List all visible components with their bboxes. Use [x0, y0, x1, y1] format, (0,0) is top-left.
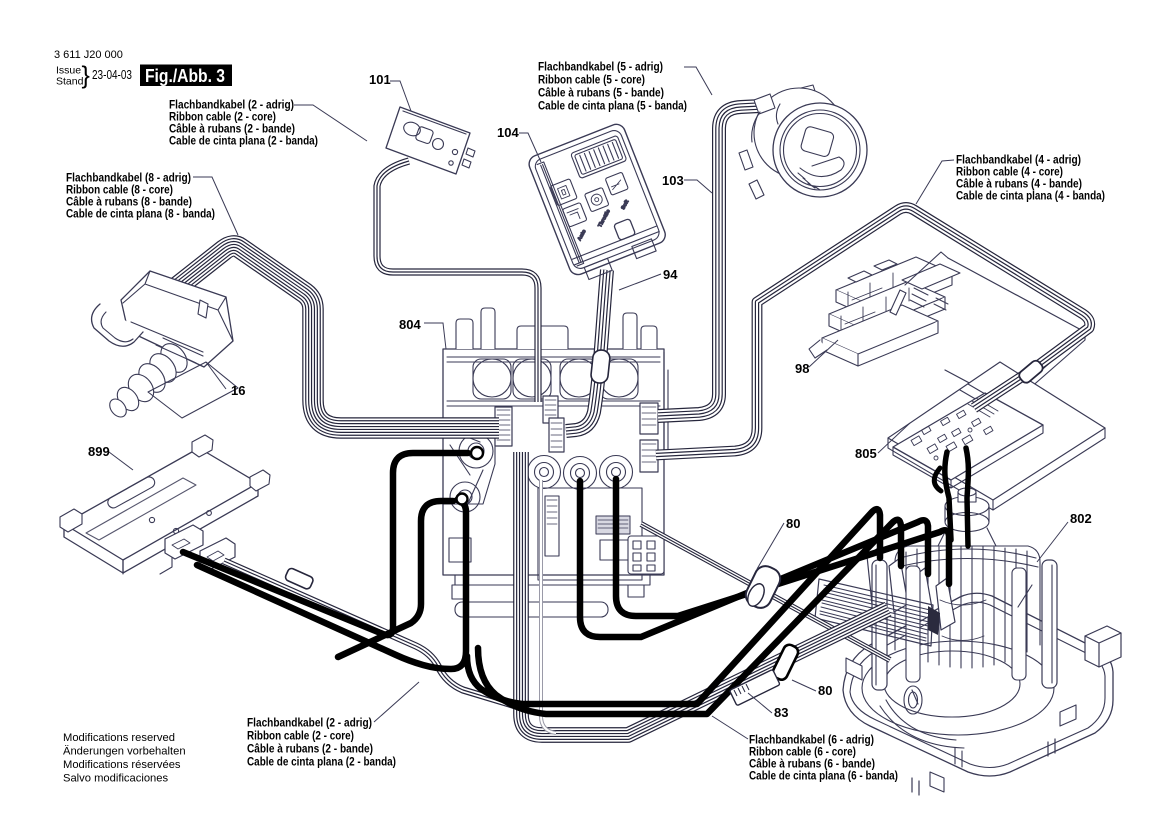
- svg-text:103: 103: [662, 173, 684, 188]
- svg-text:101: 101: [369, 72, 391, 87]
- svg-text:Salvo modificaciones: Salvo modificaciones: [63, 773, 168, 785]
- svg-text:Cable de cinta plana (5 - band: Cable de cinta plana (5 - banda): [538, 100, 687, 113]
- svg-text:98: 98: [795, 361, 809, 376]
- svg-text:804: 804: [399, 317, 421, 332]
- svg-text:Câble à rubans (2 - bande): Câble à rubans (2 - bande): [247, 743, 373, 756]
- svg-text:Änderungen vorbehalten: Änderungen vorbehalten: [63, 746, 186, 758]
- svg-text:805: 805: [855, 446, 877, 461]
- svg-text:Flachbandkabel (5 - adrig): Flachbandkabel (5 - adrig): [538, 61, 663, 74]
- svg-text:}: }: [82, 62, 90, 90]
- svg-text:Modifications réservées: Modifications réservées: [63, 759, 181, 771]
- svg-text:Cable de cinta plana (6 - band: Cable de cinta plana (6 - banda): [749, 770, 898, 783]
- svg-text:Cable de cinta plana (2 - band: Cable de cinta plana (2 - banda): [247, 756, 396, 769]
- svg-text:94: 94: [663, 267, 678, 282]
- svg-text:899: 899: [88, 444, 110, 459]
- svg-text:80: 80: [786, 516, 800, 531]
- svg-text:Cable de cinta plana (4 - band: Cable de cinta plana (4 - banda): [956, 190, 1105, 203]
- svg-text:16: 16: [231, 383, 245, 398]
- svg-text:Stand: Stand: [56, 76, 84, 88]
- svg-text:Cable de cinta plana (8 - band: Cable de cinta plana (8 - banda): [66, 208, 215, 221]
- svg-text:3 611 J20 000: 3 611 J20 000: [54, 49, 123, 61]
- svg-text:104: 104: [497, 125, 519, 140]
- svg-text:Fig./Abb. 3: Fig./Abb. 3: [145, 66, 225, 86]
- svg-text:80: 80: [818, 683, 832, 698]
- svg-text:Câble à rubans (5 - bande): Câble à rubans (5 - bande): [538, 87, 664, 100]
- svg-text:23-04-03: 23-04-03: [92, 68, 132, 82]
- svg-text:83: 83: [774, 705, 788, 720]
- svg-text:802: 802: [1070, 511, 1092, 526]
- svg-text:Modifications reserved: Modifications reserved: [63, 732, 175, 744]
- svg-text:Ribbon cable (2 - core): Ribbon cable (2 - core): [247, 730, 354, 743]
- svg-text:Ribbon cable (5 - core): Ribbon cable (5 - core): [538, 74, 645, 87]
- svg-text:Flachbandkabel (2 - adrig): Flachbandkabel (2 - adrig): [247, 717, 372, 730]
- svg-text:Cable de cinta plana (2 - band: Cable de cinta plana (2 - banda): [169, 135, 318, 148]
